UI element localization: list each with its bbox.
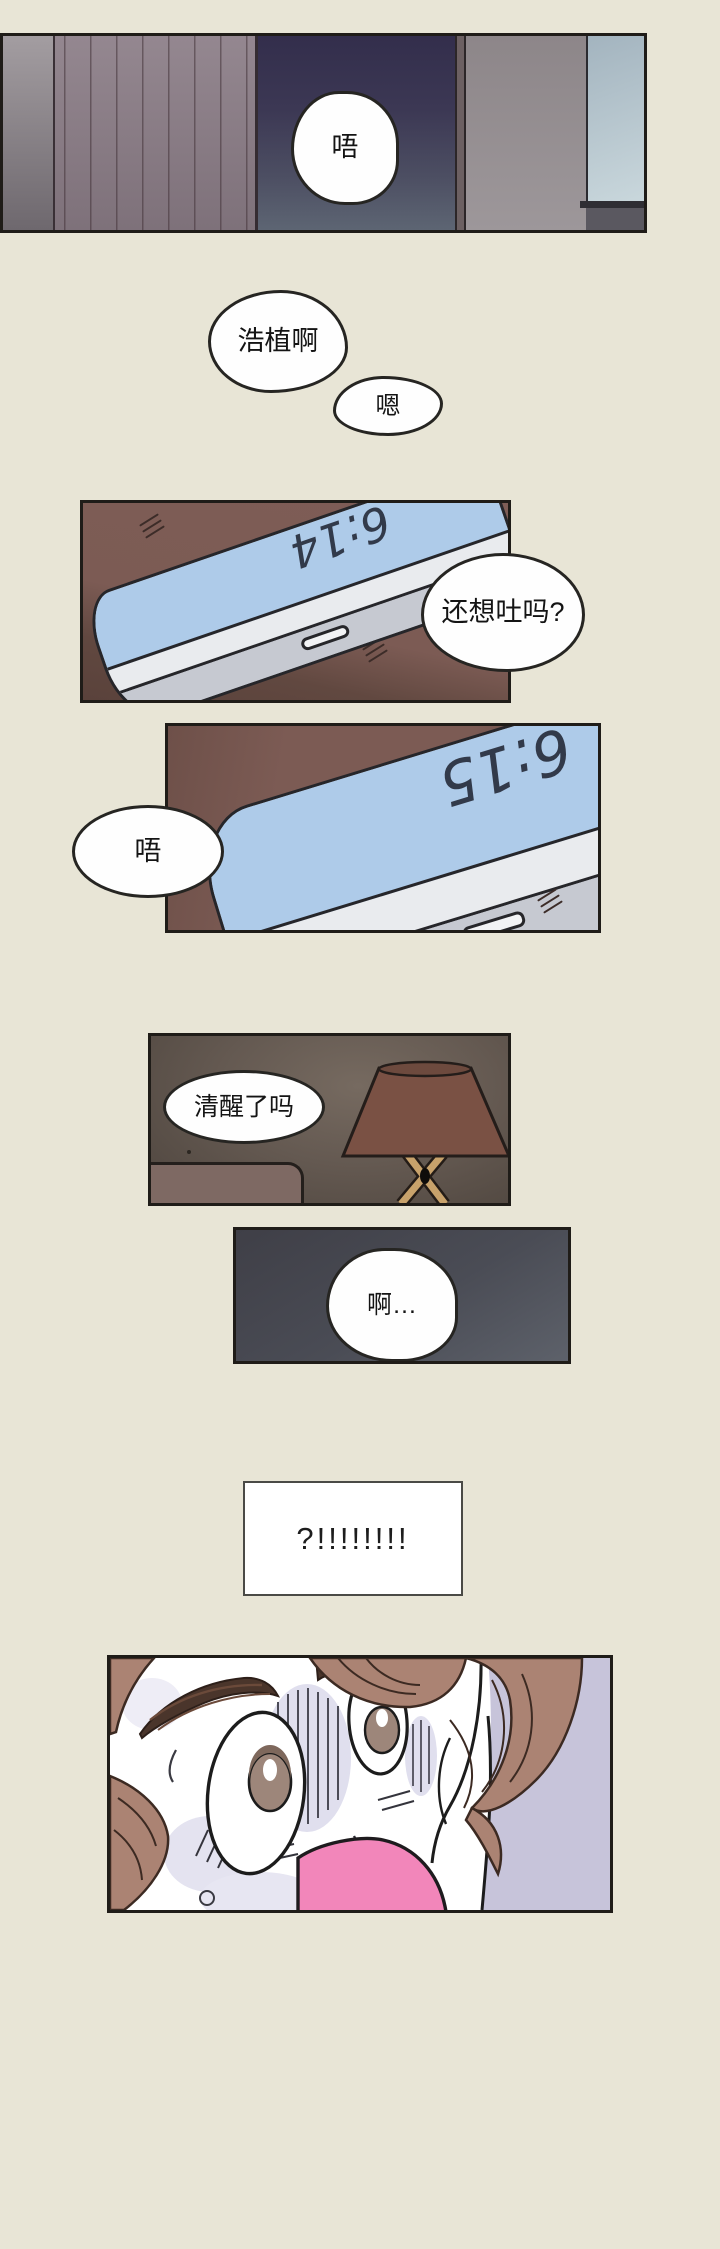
panel-phone-615: 6:15 xyxy=(165,723,601,933)
table-scratch-marks xyxy=(536,894,562,910)
panel-dark-reply: 啊… xyxy=(233,1227,571,1364)
shock-text-box: ?!!!!!!!! xyxy=(243,1481,463,1596)
bedroom-left-wall xyxy=(3,36,53,230)
speck xyxy=(187,1150,191,1154)
phone-time-display: 6:15 xyxy=(361,723,601,844)
panel-bedroom: 唔 xyxy=(0,33,647,233)
panel-lamp-room: 清醒了吗 xyxy=(148,1033,511,1206)
right-pupil-highlight xyxy=(376,1709,388,1727)
speech-text: 嗯 xyxy=(375,392,400,421)
sofa xyxy=(151,1162,304,1206)
bedroom-wall-below-sill xyxy=(586,208,646,232)
speech-bubble-ah: 啊… xyxy=(326,1248,458,1362)
table-scratch-marks xyxy=(138,519,164,535)
speech-text: 浩植啊 xyxy=(238,326,319,357)
bedroom-right-wall xyxy=(466,36,586,230)
speech-text: 啊… xyxy=(367,1291,417,1320)
speech-bubble-vomit-question: 还想吐吗? xyxy=(421,553,585,672)
speech-bubble-call-name: 浩植啊 xyxy=(208,290,348,393)
bedroom-door-frame xyxy=(455,36,466,230)
speech-text: 清醒了吗 xyxy=(194,1093,294,1122)
speech-text: 还想吐吗? xyxy=(441,597,564,628)
speech-bubble-groan-2: 唔 xyxy=(72,805,224,898)
table-lamp xyxy=(339,1058,511,1206)
bedroom-wood-door xyxy=(53,36,258,230)
speech-bubble-groan-1: 唔 xyxy=(291,91,399,205)
speech-bubble-awake-question: 清醒了吗 xyxy=(163,1070,325,1144)
bedroom-window xyxy=(586,36,646,201)
webtoon-page: { "comic": { "panel_bedroom": { "bubble_… xyxy=(0,0,720,2249)
speech-text: 唔 xyxy=(135,836,162,867)
speech-text: 唔 xyxy=(332,132,359,163)
speech-bubble-reply-mm: 嗯 xyxy=(333,376,443,436)
shocked-face-art xyxy=(110,1658,610,1910)
bedroom-window-sill xyxy=(580,201,646,208)
left-pupil-highlight xyxy=(263,1759,277,1781)
shock-text: ?!!!!!!!! xyxy=(296,1521,409,1557)
panel-shocked-face xyxy=(107,1655,613,1913)
